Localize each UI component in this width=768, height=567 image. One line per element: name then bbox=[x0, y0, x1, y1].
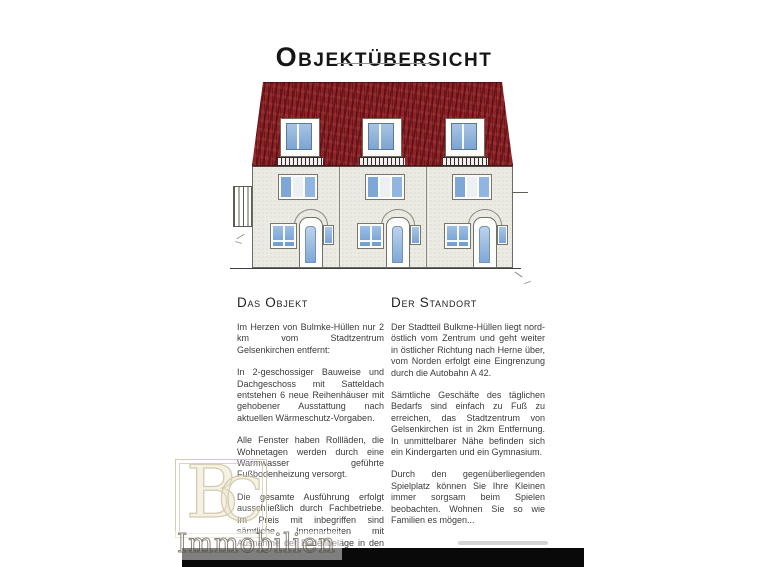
entrance-door bbox=[386, 217, 410, 268]
entrance-door bbox=[473, 217, 497, 268]
upper-window bbox=[453, 175, 491, 199]
dormer-railing bbox=[277, 157, 323, 166]
door-glass bbox=[479, 226, 490, 263]
section-der-standort: Der Standort Der Stadtteil Bulkme-Hüllen… bbox=[391, 295, 545, 538]
ground-line bbox=[230, 268, 521, 269]
door-glass bbox=[392, 226, 403, 263]
building-elevation bbox=[252, 82, 513, 268]
paragraph: Sämtliche Geschäfte des täglichen Bedarf… bbox=[391, 390, 545, 458]
watermark-label: Immobilien bbox=[171, 531, 342, 560]
dormer-glass bbox=[286, 123, 312, 150]
living-room-window bbox=[358, 224, 383, 248]
section-heading: Der Standort bbox=[391, 295, 545, 310]
house-unit bbox=[426, 166, 513, 268]
roof bbox=[252, 82, 513, 166]
dormer-glass bbox=[451, 123, 477, 150]
side-window bbox=[498, 226, 507, 244]
pencil-mark bbox=[235, 241, 242, 244]
dormer-window bbox=[445, 118, 485, 166]
watermark-logo: B C Immobilien bbox=[171, 459, 301, 563]
logo-frame: B C bbox=[175, 459, 267, 538]
house-unit bbox=[252, 166, 339, 268]
dormer-railing bbox=[359, 157, 405, 166]
trellis bbox=[233, 186, 252, 227]
paragraph: Durch den gegenüberliegenden Spielplatz … bbox=[391, 469, 545, 526]
pencil-mark bbox=[515, 272, 523, 278]
living-room-window bbox=[445, 224, 470, 248]
dormer-window bbox=[362, 118, 402, 166]
side-window bbox=[411, 226, 420, 244]
pencil-mark bbox=[236, 234, 244, 240]
dormer-window bbox=[280, 118, 320, 166]
page-title: Objektübersicht bbox=[0, 42, 768, 73]
paragraph: Im Herzen von Bulmke-Hüllen nur 2 km vom… bbox=[237, 322, 384, 356]
logo-monogram-c: C bbox=[218, 466, 264, 534]
upper-window bbox=[279, 175, 317, 199]
pencil-mark bbox=[524, 281, 531, 284]
paragraph: In 2-geschossiger Bauweise und Dachgesch… bbox=[237, 367, 384, 424]
side-window bbox=[324, 226, 333, 244]
exposé-page: Objektübersicht bbox=[0, 0, 768, 567]
living-room-window bbox=[271, 224, 296, 248]
faded-footer-text bbox=[458, 541, 548, 545]
dormer-railing bbox=[442, 157, 488, 166]
upper-window bbox=[366, 175, 404, 199]
dormer-glass bbox=[368, 123, 394, 150]
section-heading: Das Objekt bbox=[237, 295, 384, 310]
title-underline bbox=[337, 63, 433, 64]
entrance-door bbox=[299, 217, 323, 268]
pencil-mark bbox=[513, 192, 528, 193]
paragraph: Der Stadtteil Bulkme-Hüllen liegt nord-ö… bbox=[391, 322, 545, 379]
door-glass bbox=[305, 226, 316, 263]
house-unit bbox=[339, 166, 426, 268]
